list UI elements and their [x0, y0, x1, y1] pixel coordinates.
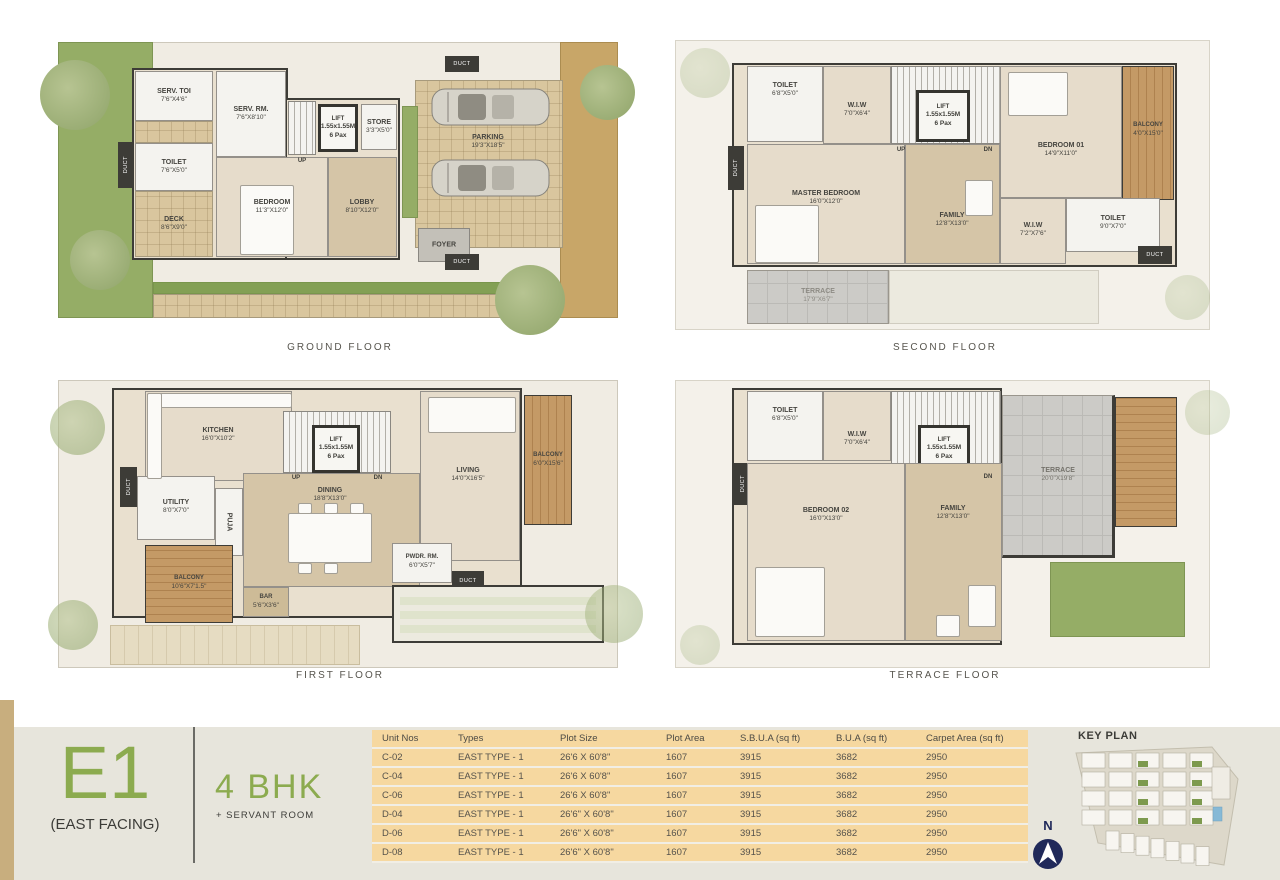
table-header-cell: Unit Nos [372, 730, 448, 748]
tree-icon [50, 400, 105, 455]
stairs-dn-label: DN [374, 475, 383, 481]
table-cell: EAST TYPE - 1 [448, 824, 550, 843]
table-cell: 3682 [826, 786, 916, 805]
table-cell: 26'6 X 60'8" [550, 786, 656, 805]
room-label: FOYER [432, 240, 456, 249]
unit-bhk-sub: + SERVANT ROOM [216, 810, 314, 821]
table-cell: 1607 [656, 748, 730, 767]
room-label: TERRACE17'9"X6'7" [801, 287, 835, 305]
stairs-up-label: UP [292, 475, 300, 481]
tree-icon [70, 230, 130, 290]
room-label: LOBBY8'10"X12'0" [345, 198, 378, 216]
key-plan-map [1072, 745, 1242, 873]
table-cell: 1607 [656, 786, 730, 805]
room-label: STORE3'3"X5'0" [366, 118, 392, 136]
north-label: N [1034, 818, 1062, 833]
table-cell: 1607 [656, 824, 730, 843]
room-label: W.I.W7'0"X6'4" [844, 101, 870, 119]
room-label: TOILET6'8"X5'0" [772, 81, 798, 99]
stairs-up-label: UP [298, 158, 306, 164]
chair [298, 503, 312, 514]
key-plan-title: KEY PLAN [1078, 730, 1137, 742]
room-toilet [747, 391, 823, 461]
table-cell: 2950 [916, 786, 1028, 805]
table-cell: 3915 [730, 767, 826, 786]
table-row: C-06EAST TYPE - 126'6 X 60'8"16073915368… [372, 786, 1028, 805]
garden-below [400, 597, 596, 633]
table-row: C-04EAST TYPE - 126'6 X 60'8"16073915368… [372, 767, 1028, 786]
table-header-cell: S.B.U.A (sq ft) [730, 730, 826, 748]
stairs-dn-label: DN [984, 147, 993, 153]
table-cell: 3915 [730, 805, 826, 824]
table-cell: D-06 [372, 824, 448, 843]
unit-facing: (EAST FACING) [10, 816, 200, 833]
table-row: C-02EAST TYPE - 126'6 X 60'8"16073915368… [372, 748, 1028, 767]
kitchen-counter [147, 393, 292, 408]
table-cell: 26'6" X 60'8" [550, 843, 656, 862]
table-cell: 2950 [916, 805, 1028, 824]
room-label: UTILITY8'0"X7'0" [163, 498, 189, 516]
unit-bhk: 4 BHK [205, 768, 365, 807]
room-toilet [747, 66, 823, 142]
room-label: BEDROOM 0216'0"X13'0" [803, 506, 849, 524]
table-header-cell: Plot Size [550, 730, 656, 748]
stairs-up-label: UP [897, 147, 905, 153]
chair [298, 563, 312, 574]
first-floor-caption: FIRST FLOOR [40, 670, 640, 681]
room-label: PWDR. RM.6'0"X5'7" [406, 554, 439, 570]
room-label: LIVING14'0"X16'5" [451, 466, 484, 484]
duct-label: DUCT [728, 146, 744, 190]
table-cell: D-08 [372, 843, 448, 862]
table-cell: 2950 [916, 824, 1028, 843]
terrace-floor-caption: TERRACE FLOOR [650, 670, 1240, 681]
table-cell: EAST TYPE - 1 [448, 748, 550, 767]
ground-floor-plan: LIFT 1.55x1.55M 6 Pax DUCT DUCT DUCT SER… [40, 30, 640, 345]
table-header-cell: Types [448, 730, 550, 748]
table-cell: 3915 [730, 843, 826, 862]
room-label: BAR5'6"X3'6" [253, 594, 279, 610]
chair [324, 563, 338, 574]
chair [350, 503, 364, 514]
table-header-cell: Carpet Area (sq ft) [916, 730, 1028, 748]
lift: LIFT 1.55x1.55M 6 Pax [312, 425, 360, 473]
table-cell: EAST TYPE - 1 [448, 786, 550, 805]
table-cell: C-04 [372, 767, 448, 786]
duct-label: DUCT [1138, 246, 1172, 264]
table-cell: D-04 [372, 805, 448, 824]
table-cell: EAST TYPE - 1 [448, 805, 550, 824]
room-label: TOILET9'0"X7'0" [1100, 214, 1126, 232]
duct-label: DUCT [120, 467, 137, 507]
table-header-cell: B.U.A (sq ft) [826, 730, 916, 748]
kitchen-counter [147, 393, 162, 479]
table-cell: 1607 [656, 843, 730, 862]
table-cell: 26'6 X 60'8" [550, 748, 656, 767]
tree-icon [495, 265, 565, 335]
table-cell: 26'6" X 60'8" [550, 805, 656, 824]
room-label: PUJA [224, 513, 233, 532]
room-wiw [823, 391, 891, 461]
tree-icon [680, 48, 730, 98]
room-label: TOILET7'6"X5'0" [161, 158, 187, 176]
table-row: D-08EAST TYPE - 126'6" X 60'8"1607391536… [372, 843, 1028, 862]
sofa [968, 585, 996, 627]
room-label: KITCHEN16'0"X10'2" [201, 426, 234, 444]
accent-tan-block [0, 700, 14, 880]
second-floor-caption: SECOND FLOOR [650, 342, 1240, 353]
table-cell: 3915 [730, 786, 826, 805]
room-label: BALCONY6'0"X15'6" [533, 452, 563, 468]
tree-icon [1165, 275, 1210, 320]
table-cell: 2950 [916, 748, 1028, 767]
tree-icon [1185, 390, 1230, 435]
room-label: BALCONY4'0"X15'0" [1133, 122, 1163, 138]
terrace-floor-plan: LIFT 1.55x1.55M 6 Pax DUCT TOILET6'8"X5'… [650, 375, 1240, 675]
table-row: D-04EAST TYPE - 126'6" X 60'8"1607391536… [372, 805, 1028, 824]
room-label: BEDROOM 0114'9"X11'0" [1038, 141, 1084, 159]
wood-deck [1115, 397, 1177, 527]
ground-floor-caption: GROUND FLOOR [40, 342, 640, 353]
room-label: W.I.W7'2"X7'6" [1020, 221, 1046, 239]
unit-table: Unit NosTypesPlot SizePlot AreaS.B.U.A (… [372, 730, 1028, 863]
lawn [1050, 562, 1185, 637]
table-cell: 2950 [916, 767, 1028, 786]
table-cell: 1607 [656, 767, 730, 786]
room-label: SERV. TOI7'6"X4'6" [157, 87, 191, 105]
first-floor-plan: LIFT 1.55x1.55M 6 Pax DUCT DUCT KITCHEN1… [40, 375, 640, 675]
room-label: MASTER BEDROOM16'0"X12'0" [792, 189, 860, 207]
room-label: SERV. RM.7'6"X8'10" [233, 105, 268, 123]
table-cell: 1607 [656, 805, 730, 824]
roof-band [889, 270, 1099, 324]
tree-icon [580, 65, 635, 120]
tree-icon [585, 585, 643, 643]
floorplan-sheet: { "floors": { "ground": { "label": "GROU… [0, 0, 1280, 880]
table-cell: EAST TYPE - 1 [448, 767, 550, 786]
table-cell: C-02 [372, 748, 448, 767]
tree-icon [40, 60, 110, 130]
table-cell: 3682 [826, 843, 916, 862]
divider [193, 727, 195, 863]
room-label: W.I.W7'0"X6'4" [844, 430, 870, 448]
chair [324, 503, 338, 514]
table-header-cell: Plot Area [656, 730, 730, 748]
unit-code: E1 [30, 734, 180, 812]
tree-icon [680, 625, 720, 665]
bed [240, 185, 294, 255]
room-label: BEDROOM11'3"X12'0" [254, 198, 291, 216]
chair [936, 615, 960, 637]
car-icon [428, 85, 553, 129]
table-cell: 3682 [826, 767, 916, 786]
room-label: DECK8'6"X9'0" [161, 215, 187, 233]
sofa [428, 397, 516, 433]
unit-table-head-row: Unit NosTypesPlot SizePlot AreaS.B.U.A (… [372, 730, 1028, 748]
car-icon [428, 156, 553, 200]
bed [1008, 72, 1068, 116]
hedge-vertical [402, 106, 418, 218]
unit-table-body: C-02EAST TYPE - 126'6 X 60'8"16073915368… [372, 748, 1028, 862]
table-cell: EAST TYPE - 1 [448, 843, 550, 862]
table-cell: 26'6" X 60'8" [550, 824, 656, 843]
table-cell: 26'6 X 60'8" [550, 767, 656, 786]
room-label: BALCONY10'6"X7'1.5" [172, 575, 207, 591]
room-label: TERRACE20'0"X19'8" [1041, 466, 1075, 484]
table-cell: C-06 [372, 786, 448, 805]
table-cell: 3682 [826, 805, 916, 824]
north-arrow-icon [1030, 836, 1066, 872]
duct-label: DUCT [445, 56, 479, 72]
table-cell: 3682 [826, 824, 916, 843]
table-cell: 3915 [730, 748, 826, 767]
dining-table [288, 513, 372, 563]
lower-roof-tile [110, 625, 360, 665]
sofa [965, 180, 993, 216]
table-row: D-06EAST TYPE - 126'6" X 60'8"1607391536… [372, 824, 1028, 843]
tree-icon [48, 600, 98, 650]
second-floor-plan: LIFT 1.55x1.55M 6 Pax DUCT DUCT TOILET6'… [650, 30, 1240, 345]
room-label: FAMILY12'8"X13'0" [936, 504, 969, 522]
duct-label: DUCT [118, 142, 133, 188]
room-label: TOILET6'8"X5'0" [772, 406, 798, 424]
table-cell: 2950 [916, 843, 1028, 862]
lift: LIFT 1.55x1.55M 6 Pax [318, 104, 358, 152]
room-label: PARKING19'3"X18'5" [471, 133, 504, 151]
bed [755, 567, 825, 637]
room-label: FAMILY12'8"X13'0" [935, 211, 968, 229]
stairs-dn-label: DN [984, 474, 993, 480]
room-label: DINING18'8"X13'0" [313, 486, 346, 504]
passage [135, 121, 213, 143]
lift: LIFT 1.55x1.55M 6 Pax [916, 90, 970, 142]
duct-label: DUCT [445, 254, 479, 270]
unit-table-wrap: Unit NosTypesPlot SizePlot AreaS.B.U.A (… [372, 730, 930, 863]
table-cell: 3682 [826, 748, 916, 767]
bed [755, 205, 819, 263]
stairs [288, 101, 316, 155]
table-cell: 3915 [730, 824, 826, 843]
